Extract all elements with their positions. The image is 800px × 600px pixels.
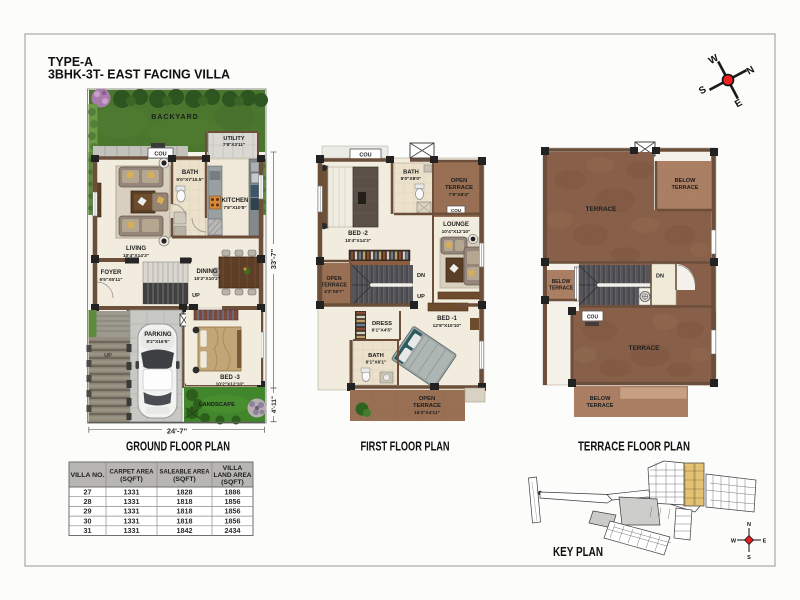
svg-text:1842: 1842 bbox=[177, 526, 193, 535]
svg-text:OPEN: OPEN bbox=[451, 178, 467, 184]
svg-text:OPEN: OPEN bbox=[419, 396, 435, 402]
svg-text:1856: 1856 bbox=[225, 507, 241, 516]
svg-text:E: E bbox=[733, 97, 745, 110]
svg-text:LANDSCAPE: LANDSCAPE bbox=[199, 402, 235, 408]
svg-text:N: N bbox=[745, 64, 757, 77]
svg-text:4'3"X6'7": 4'3"X6'7" bbox=[324, 289, 344, 294]
svg-text:1856: 1856 bbox=[225, 497, 241, 506]
svg-text:VILLA: VILLA bbox=[223, 465, 243, 472]
svg-text:2434: 2434 bbox=[225, 526, 241, 535]
svg-text:LOUNGE: LOUNGE bbox=[443, 222, 469, 228]
svg-text:1818: 1818 bbox=[177, 497, 193, 506]
svg-text:W: W bbox=[731, 539, 737, 545]
svg-text:E: E bbox=[763, 539, 767, 545]
svg-text:COU: COU bbox=[451, 208, 461, 213]
svg-text:1331: 1331 bbox=[124, 487, 140, 496]
svg-text:TERRACE: TERRACE bbox=[629, 345, 661, 352]
svg-text:BATH: BATH bbox=[182, 170, 198, 176]
svg-text:1818: 1818 bbox=[177, 516, 193, 525]
svg-text:TERRACE: TERRACE bbox=[321, 283, 347, 289]
svg-text:FIRST FLOOR PLAN: FIRST FLOOR PLAN bbox=[361, 439, 450, 454]
svg-text:BED -2: BED -2 bbox=[348, 231, 368, 237]
svg-text:BELOW: BELOW bbox=[675, 178, 697, 184]
svg-text:16'3"X4'11": 16'3"X4'11" bbox=[414, 410, 440, 416]
svg-text:S: S bbox=[697, 84, 709, 97]
svg-text:S: S bbox=[747, 555, 751, 561]
svg-text:TERRACE: TERRACE bbox=[586, 206, 618, 213]
svg-text:8'2"X16'5": 8'2"X16'5" bbox=[146, 339, 169, 345]
svg-text:1331: 1331 bbox=[124, 507, 140, 516]
svg-text:7'8"X10'8": 7'8"X10'8" bbox=[223, 205, 246, 211]
svg-text:31: 31 bbox=[84, 526, 92, 535]
svg-text:10'2"X12'10": 10'2"X12'10" bbox=[216, 382, 245, 388]
svg-text:COU: COU bbox=[587, 315, 599, 321]
svg-text:1828: 1828 bbox=[177, 487, 193, 496]
svg-text:DINING: DINING bbox=[197, 269, 218, 275]
svg-text:3BHK-3T- EAST FACING VILLA: 3BHK-3T- EAST FACING VILLA bbox=[48, 67, 231, 82]
svg-text:KEY PLAN: KEY PLAN bbox=[553, 544, 603, 559]
svg-text:DN: DN bbox=[656, 274, 664, 280]
svg-text:10'4"X12'10": 10'4"X12'10" bbox=[442, 229, 471, 235]
svg-text:KITCHEN: KITCHEN bbox=[222, 198, 249, 204]
svg-text:27: 27 bbox=[84, 487, 92, 496]
svg-text:SALEABLE AREA: SALEABLE AREA bbox=[160, 469, 210, 476]
svg-text:10'2"X10'2": 10'2"X10'2" bbox=[194, 276, 220, 282]
svg-text:CARPET AREA: CARPET AREA bbox=[110, 469, 154, 476]
svg-text:TERRACE: TERRACE bbox=[671, 185, 698, 191]
svg-text:TERRACE: TERRACE bbox=[413, 403, 441, 409]
svg-text:BED -3: BED -3 bbox=[220, 375, 240, 381]
svg-text:7'8"X8'4": 7'8"X8'4" bbox=[449, 192, 470, 198]
svg-text:BATH: BATH bbox=[368, 353, 384, 359]
svg-text:24'-7": 24'-7" bbox=[167, 427, 188, 436]
svg-text:FOYER: FOYER bbox=[101, 270, 122, 276]
svg-text:DRESS: DRESS bbox=[372, 321, 392, 327]
svg-text:PARKING: PARKING bbox=[144, 332, 172, 338]
svg-text:UP: UP bbox=[417, 294, 425, 300]
svg-text:LIVING: LIVING bbox=[126, 246, 146, 252]
svg-text:1886: 1886 bbox=[225, 487, 241, 496]
svg-text:UP: UP bbox=[192, 293, 200, 299]
svg-text:N: N bbox=[747, 522, 751, 528]
svg-text:BATH: BATH bbox=[403, 170, 419, 176]
svg-text:12'8"X10'10": 12'8"X10'10" bbox=[433, 323, 462, 329]
svg-text:1856: 1856 bbox=[225, 516, 241, 525]
svg-text:7'8"X3'11": 7'8"X3'11" bbox=[223, 142, 245, 147]
svg-text:1331: 1331 bbox=[124, 526, 140, 535]
svg-text:5'0"X8'0": 5'0"X8'0" bbox=[401, 176, 422, 182]
svg-text:GROUND FLOOR PLAN: GROUND FLOOR PLAN bbox=[126, 439, 230, 454]
svg-text:TERRACE: TERRACE bbox=[586, 403, 613, 409]
svg-text:BELOW: BELOW bbox=[552, 279, 571, 285]
svg-text:TERRACE: TERRACE bbox=[549, 286, 574, 292]
svg-text:28: 28 bbox=[84, 497, 92, 506]
svg-text:1818: 1818 bbox=[177, 507, 193, 516]
svg-text:29: 29 bbox=[84, 507, 92, 516]
svg-text:(SQFT): (SQFT) bbox=[173, 476, 196, 483]
svg-text:(SQFT): (SQFT) bbox=[221, 479, 244, 486]
svg-text:33'-7": 33'-7" bbox=[269, 248, 278, 269]
svg-text:(SQFT): (SQFT) bbox=[120, 476, 143, 483]
svg-text:LAND AREA: LAND AREA bbox=[214, 472, 252, 479]
svg-text:30: 30 bbox=[84, 516, 92, 525]
svg-text:COU: COU bbox=[359, 153, 371, 159]
svg-text:BACKYARD: BACKYARD bbox=[151, 114, 198, 121]
svg-text:COU: COU bbox=[154, 152, 166, 158]
svg-text:UP: UP bbox=[104, 353, 112, 359]
svg-text:6'5"X5'11": 6'5"X5'11" bbox=[99, 277, 122, 283]
svg-text:TERRACE: TERRACE bbox=[445, 185, 473, 191]
svg-text:DN: DN bbox=[417, 273, 425, 279]
svg-text:5'0"X7'10.5": 5'0"X7'10.5" bbox=[176, 177, 203, 183]
svg-text:BED -1: BED -1 bbox=[437, 316, 457, 322]
svg-text:6'1"X4'5": 6'1"X4'5" bbox=[372, 328, 393, 334]
svg-text:10'4"X14'3": 10'4"X14'3" bbox=[345, 238, 371, 244]
svg-text:1331: 1331 bbox=[124, 516, 140, 525]
svg-text:6'1"X6'1": 6'1"X6'1" bbox=[366, 360, 387, 366]
svg-text:1331: 1331 bbox=[124, 497, 140, 506]
svg-text:4'-11": 4'-11" bbox=[271, 396, 278, 413]
svg-text:TERRACE FLOOR PLAN: TERRACE FLOOR PLAN bbox=[578, 439, 690, 454]
svg-text:BELOW: BELOW bbox=[590, 396, 612, 402]
svg-text:VILLA NO.: VILLA NO. bbox=[71, 472, 105, 479]
svg-text:OPEN: OPEN bbox=[326, 276, 341, 282]
